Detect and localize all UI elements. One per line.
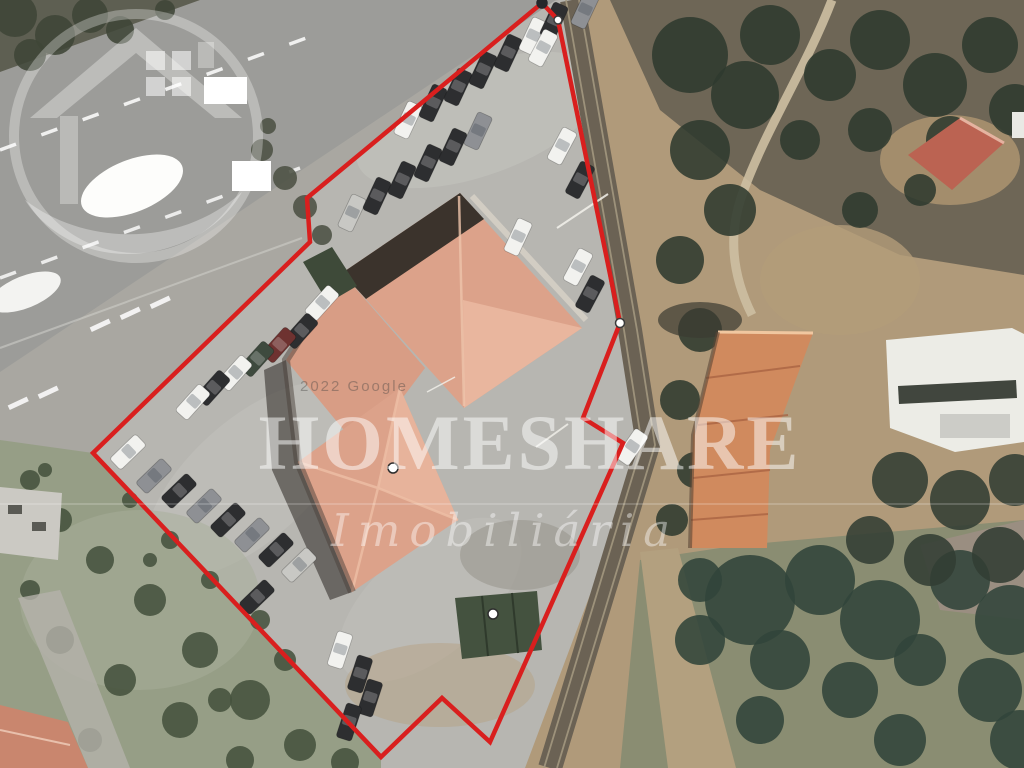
white-shed bbox=[1012, 112, 1024, 138]
green-structure bbox=[455, 591, 542, 659]
white-rectangle-marker bbox=[232, 161, 271, 191]
dirt-clearing bbox=[760, 225, 920, 335]
satellite-photo bbox=[0, 0, 1024, 768]
white-structure bbox=[886, 328, 1024, 452]
aerial-property-screenshot: 2022 Google HOMESHARE Imobiliária bbox=[0, 0, 1024, 768]
white-rectangle-marker bbox=[204, 77, 247, 104]
